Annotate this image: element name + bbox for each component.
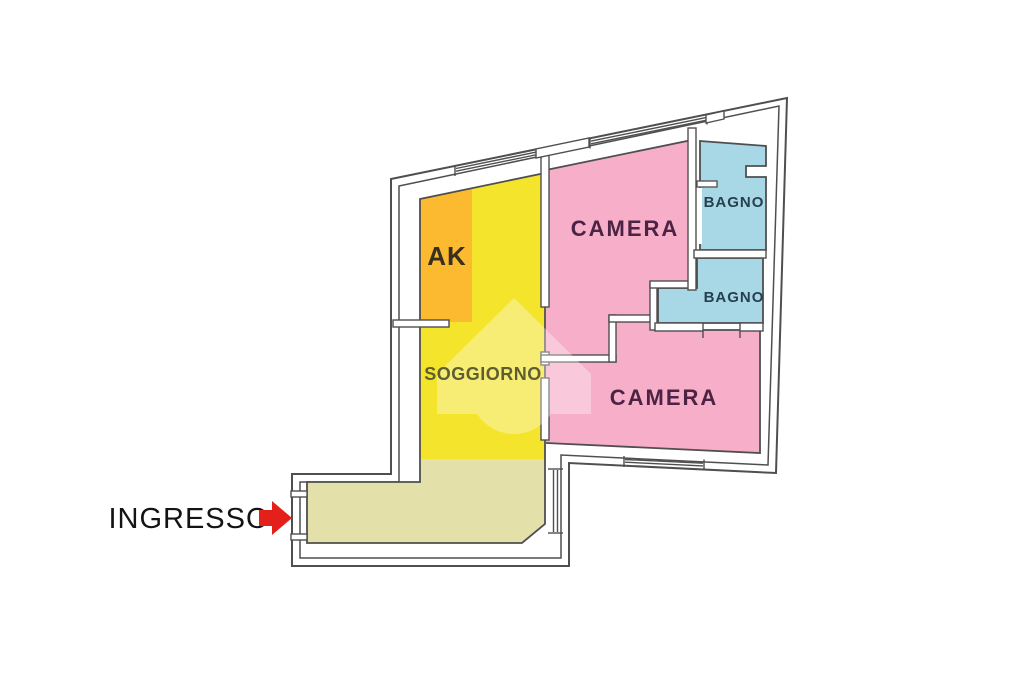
interior-wall — [694, 250, 766, 258]
bagno-2-label: BAGNO — [704, 289, 765, 306]
camera-1-label: CAMERA — [571, 216, 680, 241]
interior-wall — [541, 151, 549, 307]
bagno-1-door-gap — [698, 188, 702, 244]
floor-plan-svg: AK CAMERA CAMERA BAGNO BAGNO SOGGIORNO I… — [0, 0, 1024, 683]
ak-label: AK — [427, 241, 467, 271]
entrance-annotation: INGRESSO — [108, 501, 292, 535]
plan-root: AK CAMERA CAMERA BAGNO BAGNO SOGGIORNO I… — [108, 98, 787, 566]
entrance-door-stub — [291, 491, 307, 497]
interior-wall — [393, 320, 449, 327]
interior-wall — [688, 128, 696, 290]
camera-2-label: CAMERA — [610, 385, 719, 410]
bagno-1-label: BAGNO — [704, 194, 765, 211]
room-ingresso-area — [307, 459, 545, 543]
floor-plan-page: AK CAMERA CAMERA BAGNO BAGNO SOGGIORNO I… — [0, 0, 1024, 683]
interior-wall — [740, 323, 763, 331]
ingresso-label: INGRESSO — [108, 503, 269, 535]
soggiorno-label: SOGGIORNO — [424, 364, 542, 384]
entrance-door-stub — [291, 534, 307, 540]
interior-wall — [655, 323, 703, 331]
bagno-1-door-stub — [697, 181, 717, 187]
